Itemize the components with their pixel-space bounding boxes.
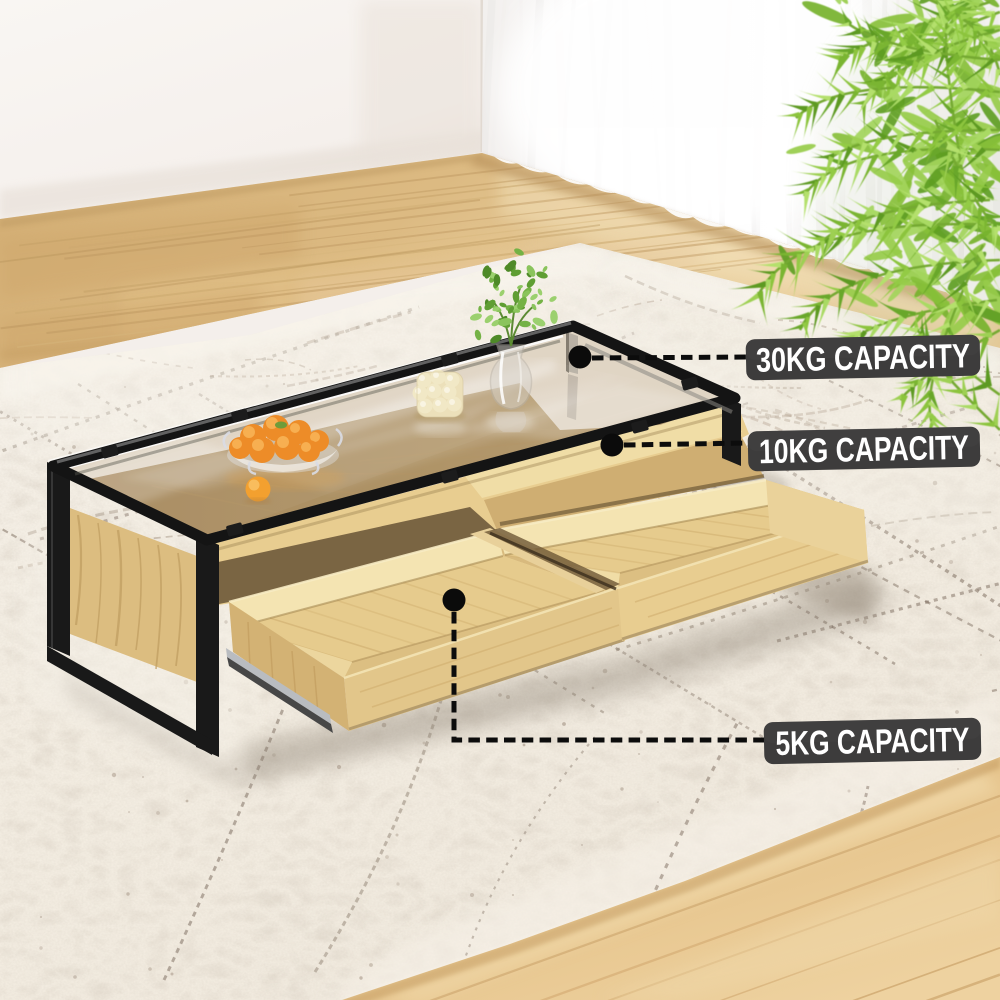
svg-text:10KG CAPACITY: 10KG CAPACITY xyxy=(759,429,970,471)
svg-text:5KG CAPACITY: 5KG CAPACITY xyxy=(775,721,970,763)
svg-text:30KG CAPACITY: 30KG CAPACITY xyxy=(756,337,971,379)
